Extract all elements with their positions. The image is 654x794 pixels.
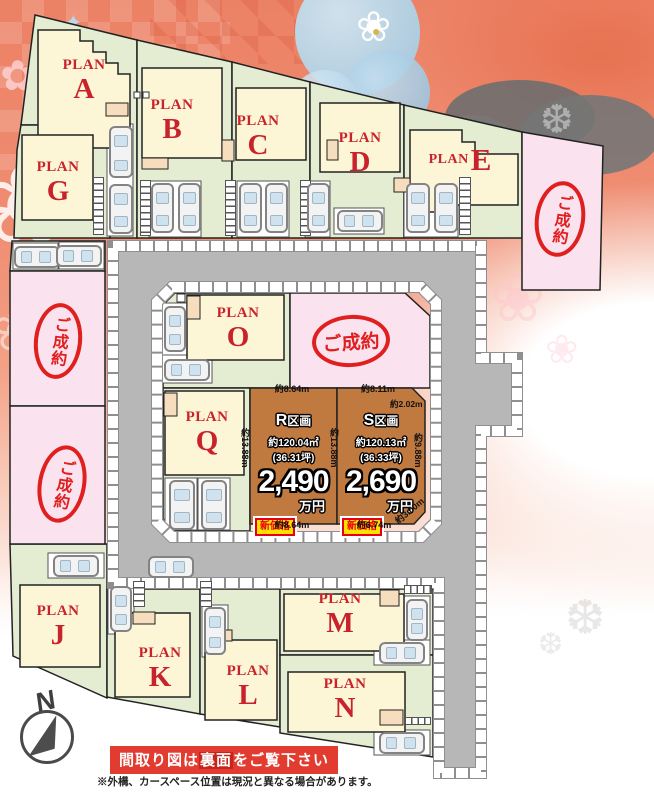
car-icon	[204, 607, 226, 655]
parcel-r-price: 2,490	[258, 465, 328, 499]
car-icon	[14, 246, 60, 268]
steps-strip	[459, 177, 471, 235]
car-icon	[265, 183, 288, 233]
car-icon	[307, 183, 330, 233]
plan-label-o: PLANO	[206, 306, 270, 352]
plan-label-q: PLANQ	[175, 410, 239, 456]
plan-label-c: PLANC	[226, 114, 290, 160]
dim-r-left: 約13.88m	[239, 428, 252, 468]
plan-label-e: PLANE	[405, 144, 515, 175]
car-icon	[151, 183, 174, 233]
car-icon	[337, 210, 383, 232]
parcel-r-price-unit: 万円	[299, 496, 325, 515]
plan-label-m: PLANM	[308, 592, 372, 638]
plan-label-j: PLANJ	[26, 604, 90, 650]
steps-strip	[404, 585, 432, 594]
car-icon	[109, 126, 133, 178]
dim-s-left: 約13.88m	[328, 428, 341, 468]
dim-s-top-right: 約2.02m	[390, 398, 423, 410]
car-icon	[406, 183, 430, 233]
car-icon	[434, 183, 458, 233]
parcel-s-info: S区画 約120.13㎡ (36.33坪) 2,690 万円 新価格	[337, 412, 425, 536]
plan-label-b: PLANB	[140, 98, 204, 144]
disclaimer-note: ※外構、カースペース位置は現況と異なる場合があります。	[97, 774, 378, 789]
car-icon	[239, 183, 262, 233]
car-icon	[201, 480, 227, 530]
car-icon	[379, 732, 425, 754]
car-icon	[148, 556, 194, 578]
steps-strip	[405, 717, 431, 725]
car-icon	[379, 642, 425, 664]
car-icon	[53, 555, 99, 577]
steps-strip	[225, 180, 236, 236]
parcel-r-tsubo: (36.31坪)	[273, 449, 315, 464]
dim-r-bottom: 約8.64m	[260, 518, 324, 531]
steps-strip	[133, 581, 145, 607]
plan-label-g: PLANG	[26, 160, 90, 206]
car-icon	[164, 359, 210, 381]
car-icon	[56, 245, 102, 267]
dim-s-top: 約8.11m	[346, 382, 410, 395]
car-icon	[406, 599, 428, 641]
banner-highlight: 裏面	[199, 752, 233, 769]
plan-label-a: PLANA	[52, 58, 116, 104]
steps-strip	[93, 177, 104, 235]
car-icon	[109, 184, 133, 234]
plan-label-k: PLANK	[128, 646, 192, 692]
parcel-s-name: S区画	[364, 412, 399, 430]
plan-label-n: PLANN	[313, 677, 377, 723]
dim-r-top: 約8.64m	[260, 382, 324, 395]
car-icon	[164, 306, 186, 352]
parcel-r-name: R区画	[276, 412, 312, 430]
dim-s-right: 約9.88m	[412, 433, 425, 468]
parcel-r-area: 約120.04㎡	[268, 434, 319, 449]
parcel-s-price: 2,690	[346, 465, 416, 499]
steps-strip	[200, 581, 212, 607]
site-plan-graphic	[0, 0, 654, 794]
floorplan-banner: 間取り図は裏面をご覧下さい	[110, 746, 338, 774]
parcel-s-tsubo: (36.33坪)	[360, 449, 402, 464]
car-icon	[110, 586, 132, 632]
parcel-r-info: R区画 約120.04㎡ (36.31坪) 2,490 万円 新価格	[250, 412, 337, 536]
site-plan-flyer: ❀ ● ❆ ❆ ❀ ❀ ✿ ✦ ❀ ❀ ❆ ❆	[0, 0, 654, 794]
steps-strip	[140, 180, 151, 236]
plan-label-l: PLANL	[216, 664, 280, 710]
parcel-s-area: 約120.13㎡	[356, 434, 407, 449]
car-icon	[169, 480, 195, 530]
plan-label-d: PLAND	[328, 131, 392, 177]
car-icon	[178, 183, 201, 233]
